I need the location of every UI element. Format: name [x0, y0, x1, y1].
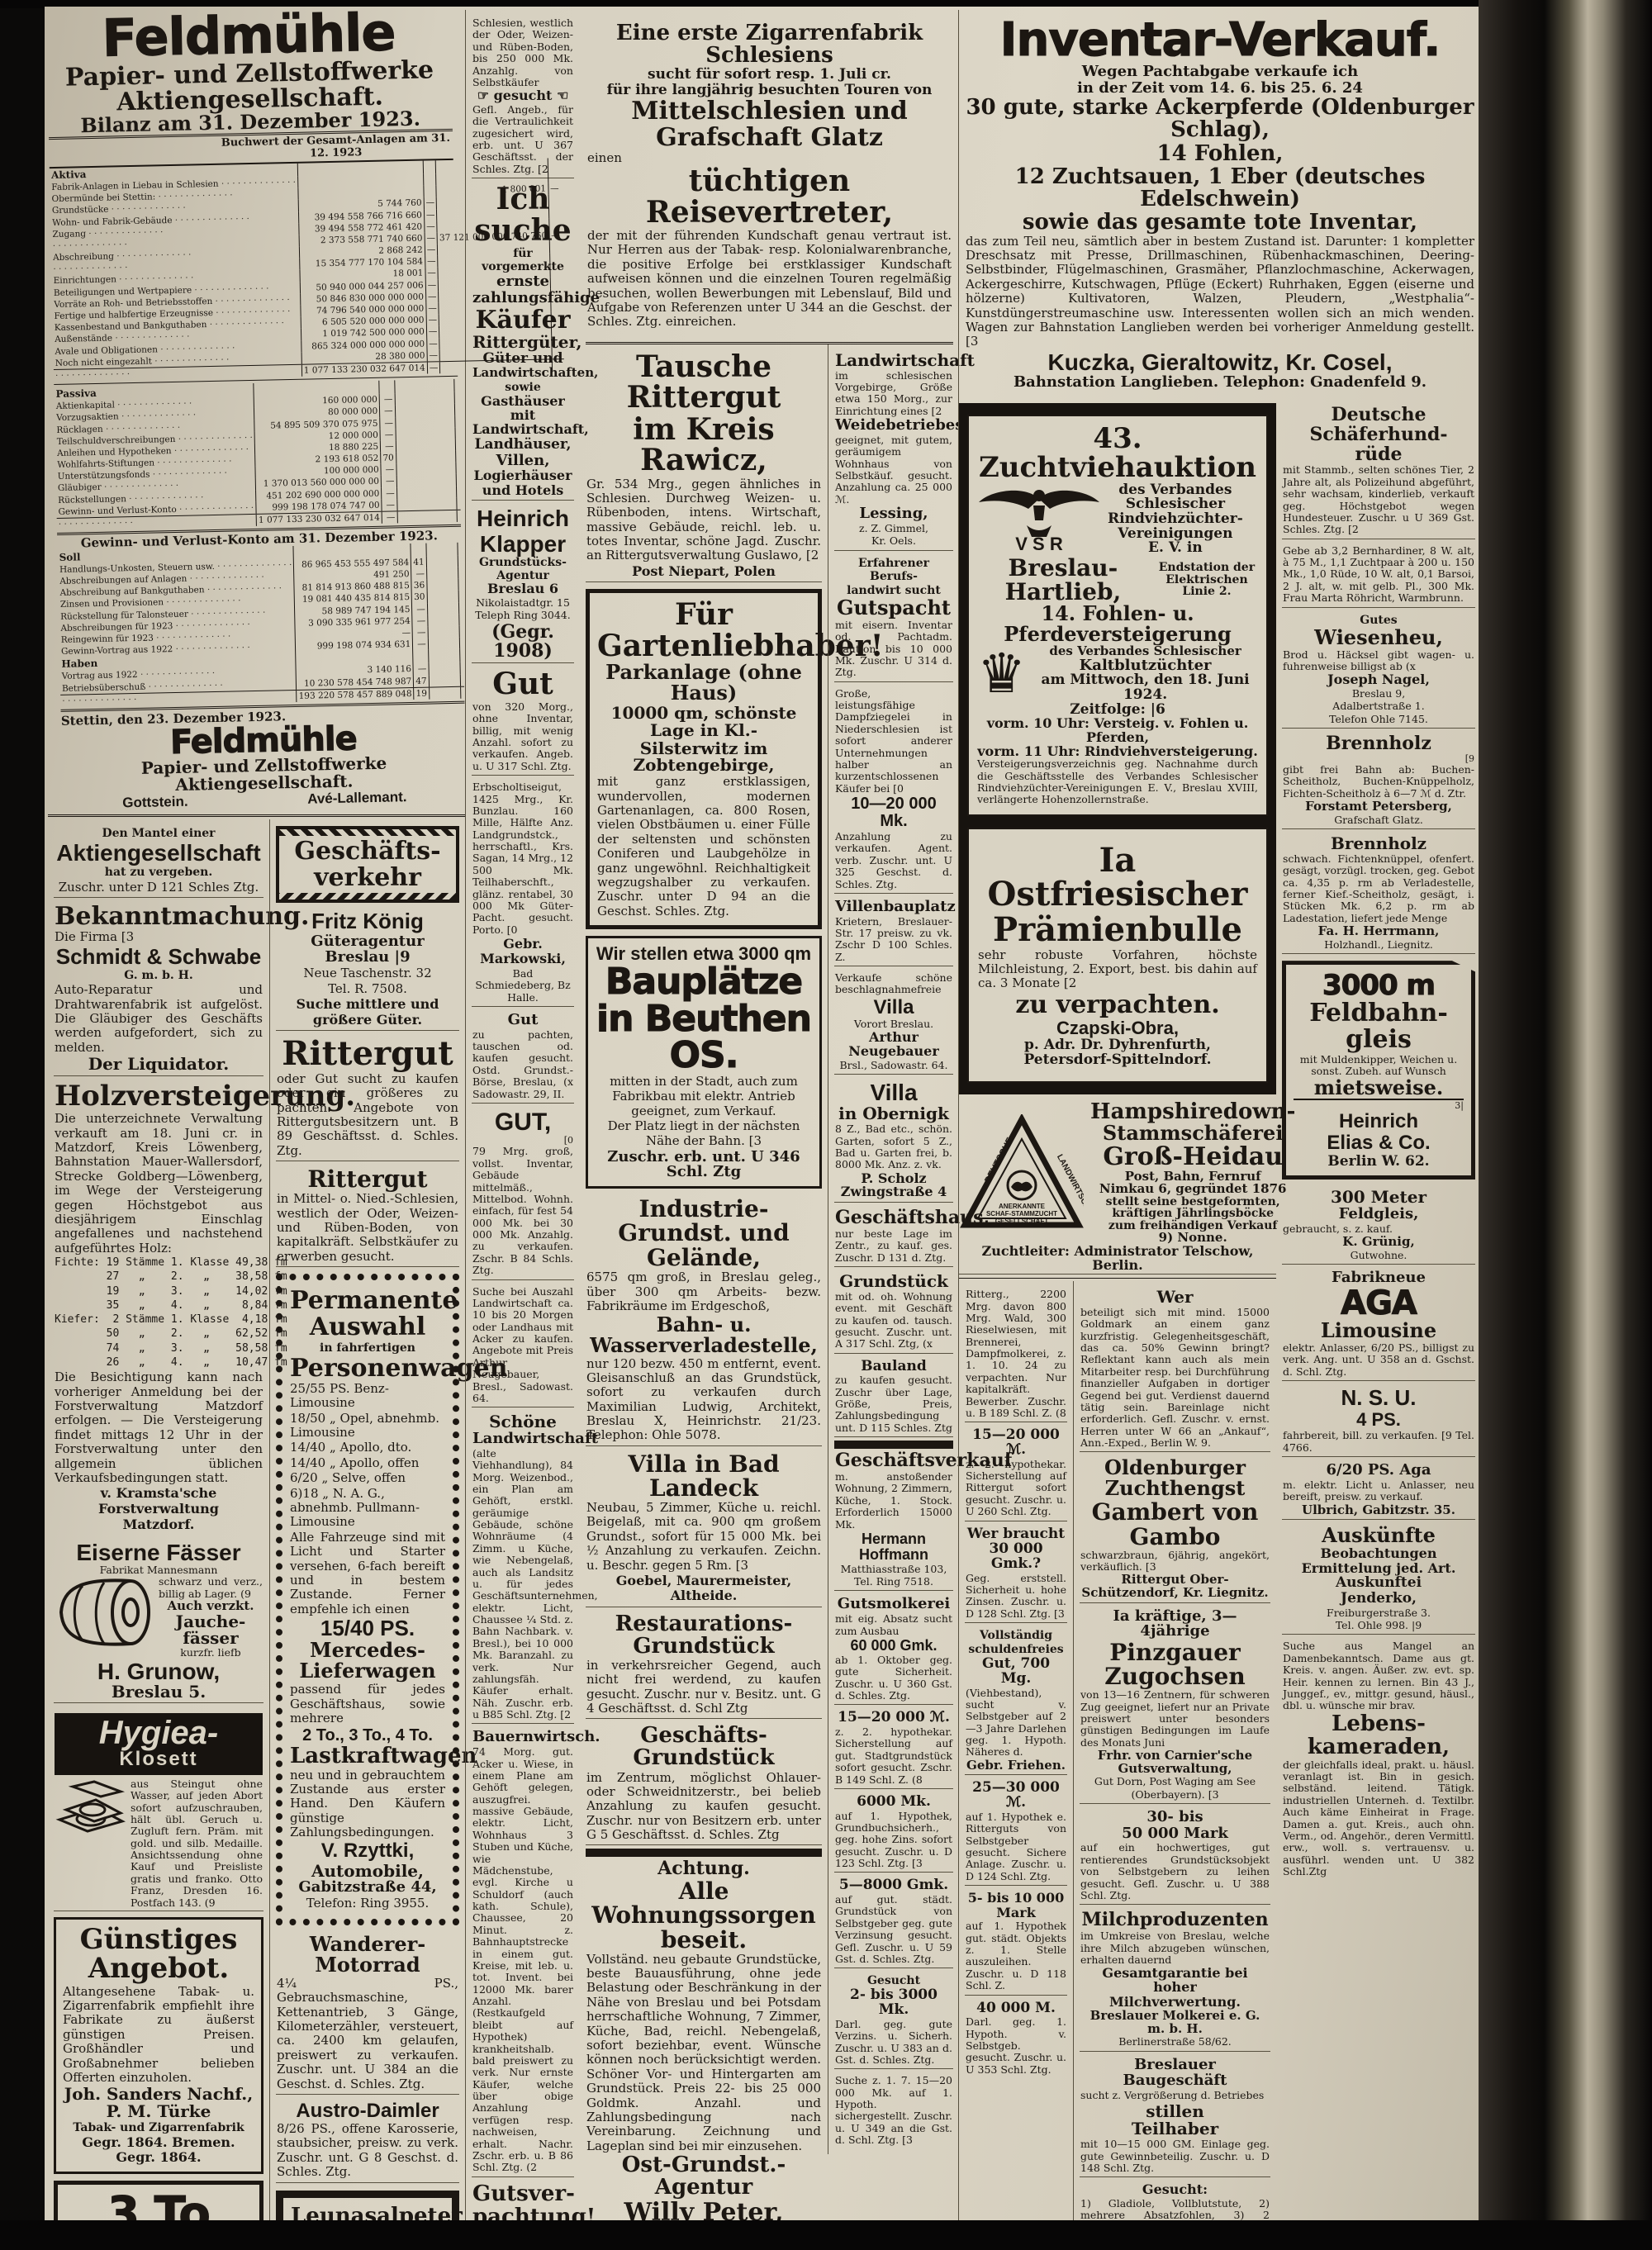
ad-headline: Schmidt & Schwabe — [55, 946, 263, 968]
balance-row-value: 47 — [414, 675, 430, 687]
ad-text: Altangesehene Tabak- u. Zigarrenfabrik e… — [63, 1985, 254, 2086]
ad-text: passend für jedes Geschäftshaus, sowie m… — [290, 1683, 445, 1725]
ad-text: schwach. Fichtenknüppel, ofenfert. gesäg… — [1283, 853, 1474, 924]
classified-ad: Erfahrener Berufs-landwirt suchtGutspach… — [834, 554, 953, 682]
classified-ad: 6000 Mk.auf 1. Hypothek, Grundbuchsicher… — [834, 1792, 953, 1873]
ad-text: Darl. geg. gute Verzins. u. Sicherh. Zus… — [835, 2019, 952, 2067]
classified-ad: Restaurations-Grundstückin verkehrsreich… — [586, 1611, 822, 1720]
ad-headline: Bauernwirtsch. — [472, 1730, 573, 1745]
ad-headline: kameraden, — [1283, 1736, 1474, 1759]
classified-ad: Oldenburger ZuchthengstGambert von Gambo… — [1080, 1455, 1270, 1602]
classified-ad: Suche aus Mangel an Damenbekanntsch. Dam… — [1282, 1638, 1475, 1880]
ad-text: 6)18 „ N. A. G., abnehmb. Pullmann-Limou… — [290, 1487, 445, 1530]
balance-row-value: — — [548, 183, 560, 194]
classified-ad: Günstiges Angebot.Altangesehene Tabak- u… — [54, 1917, 263, 2174]
classified-ad: Rittergutoder Gut sucht zu kaufen oder e… — [276, 1034, 459, 1161]
ad-text: auf 1. Hypothek e. Ritterguts von Selbst… — [966, 1811, 1066, 1882]
ad-headline: 2 To., 3 To., 4 To. — [290, 1727, 445, 1744]
ad-text: 18/50 „ Opel, abnehmb. Limousine — [290, 1412, 445, 1441]
classified-ad: BreslauerBaugeschäftsucht z. Vergrößerun… — [1080, 2055, 1270, 2178]
ad-headline: Landhäuser, — [472, 438, 573, 453]
ad-headline: Teilhaber — [1080, 2120, 1270, 2138]
ad-headline: Willy Peter, — [586, 2200, 821, 2220]
ad-headline: Alle Wohnungssorgen beseit. — [586, 1879, 821, 1951]
ad-headline: 12 Zuchtsauen, 1 Eber (deutsches Edelsch… — [966, 166, 1474, 211]
balance-row-value — [455, 415, 459, 427]
ad-headline: sowie das gesamte tote Inventar, — [966, 211, 1474, 234]
balance-row-value: — — [380, 406, 396, 418]
ad-text: Geg. erststell. Sicherheit u. hohe Zinse… — [966, 1573, 1066, 1621]
ad-text: Alle Fahrzeuge sind mit Licht und Starte… — [290, 1531, 445, 1616]
ad-headline: Wer — [1080, 1289, 1270, 1306]
zuchtviehauktion-ad: 43. Zuchtviehauktion — [967, 415, 1268, 816]
ad-text: Goebel, Maurermeister, Altheide. — [586, 1574, 821, 1604]
ad-text: Gegr. 1864. Bremen. Gegr. 1864. — [63, 2135, 254, 2166]
ad-headline: Ia kräftige, 3—4jährige — [1080, 1609, 1270, 1640]
ad-headline: Agentur — [472, 570, 573, 582]
balance-row-value — [427, 579, 459, 591]
ad-headline: Gasthäuser mit — [472, 395, 573, 422]
ad-text: Post Niepart, Polen — [586, 564, 821, 579]
ad-text: fahrbereit, bill. zu verkaufen. [9 Tel. … — [1283, 1430, 1474, 1454]
balance-row-value — [549, 265, 562, 277]
balance-row-value — [552, 358, 564, 371]
classified-ad: 3 To DixiLastkraftwagen 35 PS in maschin… — [54, 2181, 263, 2220]
ad-text: Fabrikat Mannesmann — [55, 1564, 263, 1576]
ad-headline: Gut — [472, 669, 573, 700]
ad-headline: Tausche Rittergut — [586, 352, 821, 414]
dark-band: 43. Zuchtviehauktion — [959, 403, 1276, 1094]
ad-headline: Personenwagen — [290, 1355, 445, 1381]
classified-ad: Gutsver-pachtung!350 Mrg., durchweg Weiz… — [472, 2181, 574, 2220]
ad-headline: Deutsche — [1283, 406, 1474, 425]
ad-headline: Milchverwertung. — [1080, 1996, 1270, 2010]
ad-text: Gebr. Markowski, — [472, 937, 573, 967]
ad-headline: Aktiengesellschaft — [55, 841, 263, 865]
classified-ad: Für Gartenliebhaber!Parkanlage (ohne Hau… — [586, 589, 822, 929]
ad-headline: Klosett — [56, 1749, 261, 1769]
balance-row-value: — — [426, 314, 439, 325]
balance-row-value — [549, 253, 562, 264]
ad-headline: 300 Meter — [1283, 1189, 1474, 1206]
ad-headline: Milchproduzenten — [1080, 1911, 1270, 1930]
classified-ad: 6/20 PS. Agam. elektr. Licht u. Anlasser… — [1282, 1460, 1475, 1520]
ad-headline: Lastkraftwagen — [290, 1745, 445, 1768]
ad-headline: im Kreis Rawicz, — [586, 415, 821, 477]
balance-row-value — [396, 463, 456, 476]
classified-ad: Leunasalpeterschwefelsaures AmmoniakKali… — [276, 2191, 459, 2220]
classified-ad: Milchproduzentenim Umkreise von Breslau,… — [1080, 1908, 1270, 2051]
ad-headline: Hampshiredown- — [1090, 1101, 1295, 1123]
balance-row-value: — — [379, 394, 395, 406]
classified-ad: 15—20 000 ℳ.z. 2. hypothekar. Sicherstel… — [965, 1426, 1067, 1521]
ad-text: vorm. 11 Uhr: Rindviehversteigerung. — [977, 745, 1258, 759]
barrel-icon — [55, 1576, 154, 1649]
ad-text: Auto-Reparatur und Drahtwarenfabrik ist … — [55, 983, 263, 1055]
ad-headline: 15—20 000 ℳ. — [966, 1428, 1066, 1457]
hygiea-banner: Hygiea- Klosett — [55, 1713, 263, 1775]
ad-headline: Bahn- u. Wasserverladestelle, — [586, 1315, 821, 1356]
classified-ad: Geschäftshaus,nur beste Lage im Zentr., … — [834, 1206, 953, 1267]
ad-headline: Für Gartenliebhaber! — [597, 600, 810, 662]
ad-text: 6575 qm groß, in Breslau geleg., über 30… — [586, 1270, 821, 1313]
classified-ad: AuskünfteBeobachtungenErmittelung jed. A… — [1282, 1523, 1475, 1635]
ad-headline: Breslau-Hartlieb, — [977, 556, 1149, 604]
column-7: Werbeteiligt sich mit mind. 15000 Goldma… — [1073, 1281, 1276, 2220]
balance-row-value: — — [413, 663, 429, 676]
hygiea-klosett-ad: Hygiea- Klosett — [54, 1706, 263, 1911]
balance-row-value: 3 090 335 961 977 254 — [295, 615, 412, 629]
book-binding-shadow — [1479, 0, 1652, 2250]
balance-row-value: 70 — [381, 452, 396, 464]
balance-row-value: — — [413, 638, 429, 651]
ad-text: mitten in der Stadt, auch zum Fabrikbau … — [595, 1075, 813, 1118]
ad-text: Vollständig — [966, 1629, 1066, 1642]
balance-row-value: — — [424, 209, 437, 221]
ad-text: 14/40 „ Apollo, offen — [290, 1456, 445, 1470]
classified-ad: Wanderer-Motorrad4¼ PS., Gebrauchsmaschi… — [276, 1932, 459, 2095]
ad-headline: Groß-Heidau — [1090, 1144, 1295, 1170]
ad-text: Gut Dorn, Post Waging am See — [1080, 1776, 1270, 1787]
ad-headline: Forstamt Petersberg, — [1283, 800, 1474, 814]
balance-row-value — [458, 556, 462, 567]
balance-row-value — [550, 277, 563, 288]
ad-headline: 10000 qm, schönste Lage in Kl.- — [597, 705, 810, 739]
ad-headline: Parkanlage (ohne Haus) — [597, 662, 810, 704]
ad-text: mit Muldenkipper, Weichen u. sonst. Zube… — [1294, 1054, 1464, 1078]
ad-headline: Heinrich — [472, 506, 573, 530]
ad-text: mit Stammb., selten schönes Tier, 2 Jahr… — [1283, 464, 1474, 535]
classified-ad: Austro-Daimler8/26 PS., offene Karosseri… — [276, 2098, 459, 2183]
ad-text: 79 Mrg. groß, vollst. Inventar, Gebäude … — [472, 1146, 573, 1276]
ad-headline: Restaurations-Grundstück — [586, 1613, 821, 1658]
ad-text: Elektrischen Linie 2. — [1156, 574, 1258, 598]
balance-row-value — [458, 567, 463, 579]
ad-headline: 4 PS. — [1283, 1410, 1474, 1429]
ad-text: gebraucht, s. z. kauf. — [1283, 1223, 1474, 1235]
ad-text: v. Kramsta'sche Forstverwaltung — [55, 1486, 263, 1517]
ad-text: Gebe ab 3,2 Bernhardiner, 8 W. alt, à 75… — [1283, 545, 1474, 605]
ad-text: 8/26 PS., offene Karosserie, staubsicher… — [277, 2122, 458, 2180]
sheep-society-triangle-logo: DEUTSCHE LANDWIRTSCH. ANERKANNTE SCHAF-S… — [960, 1114, 1084, 1232]
ad-text: Den Mantel einer — [55, 827, 263, 840]
ad-headline: sucht für sofort resp. 1. Juli cr. — [587, 68, 952, 83]
ad-headline: Bahnstation Langlieben. Telephon: Gnaden… — [966, 375, 1474, 391]
ad-headline: 5—8000 Gmk. — [835, 1878, 952, 1893]
ad-text: mit 10—15 000 GM. Einlage geg. gute Gewi… — [1080, 2138, 1270, 2174]
balance-row-value — [428, 626, 460, 638]
balance-row-value: — — [412, 603, 428, 615]
ad-text: Telefon: Ring 3955. — [290, 1896, 445, 1911]
ad-headline: Pinzgauer Zugochsen — [1080, 1640, 1270, 1688]
column-4: Tausche Rittergutim Kreis Rawicz,Gr. 534… — [580, 344, 828, 2220]
ad-headline: Holzversteigerung. — [55, 1082, 263, 1111]
balance-row-value: 1 077 133 230 032 647 014 — [301, 362, 427, 377]
ad-text: z. Z. Gimmel, — [835, 523, 952, 534]
balance-row-value — [548, 171, 560, 183]
ad-headline: Ulbrich, Gabitzstr. 35. — [1283, 1504, 1474, 1517]
ad-headline: Villa in Bad Landeck — [586, 1452, 821, 1500]
classified-ad: 300 MeterFeldgleis,gebraucht, s. z. kauf… — [1282, 1186, 1475, 1265]
ad-headline: 15/40 PS. — [290, 1617, 445, 1640]
ad-headline: 30- bis — [1080, 1810, 1270, 1825]
ad-headline: Achtung. — [586, 1859, 821, 1878]
ad-text: kräftigen Jährlingsböcke — [1090, 1208, 1295, 1220]
ad-text: sucht z. Vergrößerung d. Betriebes — [1080, 2090, 1270, 2101]
ad-text: auf 1. Hypothek, Grundbuchsicherh., geg.… — [835, 1811, 952, 1870]
ad-text: nur beste Lage im Zentr., zu kauf. ges. … — [835, 1228, 952, 1264]
feldmuehle-balance-ad: Feldmühle Papier- und Zellstoffwerke Akt… — [45, 7, 473, 814]
ad-headline: Schöne — [472, 1413, 573, 1431]
classified-ad: Gesucht2- bis 3000 Mk.Darl. geg. gute Ve… — [834, 1972, 953, 2069]
balance-row-value: — — [380, 440, 396, 453]
balance-row-value — [427, 602, 459, 615]
ad-headline: Geschäfts- — [286, 838, 449, 864]
balance-row-value — [456, 474, 460, 486]
balance-row-value — [548, 206, 561, 218]
ad-text: Zuschr. unter D 121 Schles Ztg. — [55, 881, 263, 895]
balance-row-value — [396, 439, 456, 453]
zigarrenfabrik-ad-wrap: Eine erste Zigarrenfabrik Schlesienssuch… — [580, 10, 959, 342]
ad-headline: Rittergut Ober-Schützendorf, Kr. Liegnit… — [1080, 1574, 1270, 1599]
classified-ad: Schlesien, westlich der Oder, Weizen- un… — [472, 15, 574, 178]
ad-headline: 6000 Mk. — [835, 1795, 952, 1810]
ad-headline: Heinrich — [1294, 1111, 1464, 1132]
ad-text: mit ganz erstklassigen, wundervollen, mo… — [597, 775, 810, 919]
balance-row-value — [460, 649, 464, 662]
ad-text: Vollständ. neu gebaute Grundstücke, best… — [586, 1953, 821, 2153]
ad-headline: Villa — [835, 997, 952, 1018]
ad-text: Breslau 9, — [1283, 688, 1474, 700]
ad-text: Teleph Ring 3044. — [472, 610, 573, 621]
ad-headline: Landwirtschaft — [472, 1431, 573, 1447]
ad-text: z. 2. hypothekar. Sicherstellung auf Rit… — [966, 1459, 1066, 1518]
balance-col-header: Buchwert der Gesamt-Anlagen am 31. 12. 1… — [218, 133, 453, 162]
balance-row-value — [396, 451, 456, 464]
ad-headline: Ia Ostfriesischer — [978, 843, 1257, 912]
balance-row-value: — — [427, 349, 440, 362]
balance-row-value — [429, 686, 461, 699]
classified-ad: Geschäfts-Grundstückim Zentrum, möglichs… — [586, 1722, 822, 1845]
ad-headline: 30 gute, starke Ackerpferde (Oldenburger… — [966, 97, 1474, 141]
balance-row-value — [455, 439, 459, 451]
ad-text: G. m. b. H. — [55, 969, 263, 982]
ad-text: gibt frei Bahn ab: Buchen-Scheitholz, Bu… — [1283, 764, 1474, 800]
ad-text: von 13—16 Zentnern, für schweren Zug gee… — [1080, 1689, 1270, 1749]
ad-text: Bad Schmiedeberg, Bz Halle. — [472, 968, 573, 1004]
ad-text: [9 — [1283, 754, 1474, 763]
ad-headline: 60 000 Gmk. — [835, 1638, 952, 1654]
balance-table-passiva: PassivaAktienkapital160 000 000—Vorzugsa… — [54, 379, 461, 530]
svg-text:SCHAF-STAMMZUCHT: SCHAF-STAMMZUCHT — [986, 1210, 1057, 1218]
ad-headline: 5- bis 10 000 — [966, 1892, 1066, 1906]
ad-text: 27 „ 2. „ 38,58 fm — [55, 1270, 263, 1284]
ad-text: 26 „ 4. „ 10,47 fm — [55, 1356, 263, 1369]
ad-text: Die Firma [3 — [55, 930, 263, 944]
ad-headline: zu verpachten. — [978, 992, 1257, 1018]
newspaper-scan: Feldmühle Papier- und Zellstoffwerke Akt… — [0, 0, 1652, 2250]
ad-headline: Automobile, — [290, 1863, 445, 1880]
column-1: Den Mantel einerAktiengesellschafthat zu… — [48, 819, 269, 2220]
ad-text: Matzdorf. — [55, 1517, 263, 1532]
balance-row-value — [457, 510, 461, 522]
ad-text: Neubau, 5 Zimmer, Küche u. reichl. Beige… — [586, 1501, 821, 1573]
balance-row-value — [396, 474, 457, 487]
classified-ad: Ritterg., 2200 Mrg. davon 800 Mrg. Wald,… — [965, 1286, 1067, 1422]
ad-text: Erfahrener Berufs- — [835, 557, 952, 583]
ad-headline: 25—30 000 ℳ. — [966, 1781, 1066, 1810]
ad-headline: V. Rzyttki, — [290, 1840, 445, 1861]
ad-headline: Villenbauplatz — [835, 900, 952, 915]
ad-headline: Stammschäferei — [1090, 1123, 1295, 1144]
ad-headline: in Obernigk — [835, 1105, 952, 1123]
ad-headline: 14 Fohlen, — [966, 143, 1474, 165]
eagle-vsr-logo: V S R — [977, 484, 1101, 555]
ad-text: (Viehbestand), sucht v. Selbstgeber auf … — [966, 1687, 1066, 1759]
ad-text: Große, leistungsfähige Dampfziegelei in … — [835, 688, 952, 795]
ad-headline: 10—20 000 Mk. — [835, 795, 952, 830]
ad-headline: Feldbahn- — [1294, 1000, 1464, 1026]
ad-text: fässer — [159, 1630, 263, 1647]
ad-text: m. anstoßender Wohnung, 2 Zimmern, Küche… — [835, 1471, 952, 1531]
ad-text: vorm. 10 Uhr: Versteig. v. Fohlen u. Pfe… — [977, 717, 1258, 744]
ad-text: Tel. Ohle 998. |9 — [1283, 1620, 1474, 1631]
ad-headline: P. Scholz Zwingstraße 4 — [835, 1172, 952, 1199]
classified-ad: Erbscholtiseigut, 1425 Mrg., Kr. Bunzlau… — [472, 779, 574, 1007]
ad-text: Brsl., Sadowastr. 64. — [835, 1060, 952, 1071]
ad-text: sehr robuste Vorfahren, höchste Milchlei… — [978, 948, 1257, 991]
balance-row-value — [460, 662, 464, 674]
balance-row-value — [454, 404, 458, 415]
ad-headline: Güteragentur — [277, 934, 458, 950]
balance-row-value — [456, 486, 460, 497]
balance-row-value — [455, 427, 459, 439]
ad-text: Holzhandl., Liegnitz. — [1283, 939, 1474, 951]
ad-headline: Brennholz — [1283, 734, 1474, 753]
classified-ad: Grundstückmit od. oh. Wohnung event. mit… — [834, 1270, 953, 1354]
ad-headline: Der Liquidator. — [55, 1056, 263, 1073]
classified-ad: VollständigschuldenfreiesGut, 700 Mg.(Vi… — [965, 1626, 1067, 1775]
ad-text: auf ein hochwertiges, gut rentierendes G… — [1080, 1842, 1270, 1901]
classified-ad: Suche z. 1. 7. 15—20 000 Mk. auf 1. Hypo… — [834, 2072, 953, 2148]
balance-row-value — [459, 638, 463, 649]
ad-headline: Rittergut — [277, 1037, 458, 1071]
classified-ad: 5- bis 10 000Markauf 1. Hypothek gut. st… — [965, 1889, 1067, 1996]
ad-headline: Bauplätze — [595, 964, 813, 1000]
balance-row-value — [550, 300, 563, 311]
ad-text: auf 1. Hypothek gut. städt. Objekts z. 1… — [966, 1920, 1066, 1991]
balance-row-value — [456, 451, 460, 463]
ad-text: 74 „ 3. „ 58,58 fm — [55, 1342, 263, 1355]
ad-text: Anzahlung zu verkaufen. Agent. verb. Zus… — [835, 831, 952, 890]
balance-row-value: — — [425, 256, 438, 268]
praemienbulle-ad-wrap: Ia OstfriesischerPrämienbullesehr robust… — [967, 828, 1268, 1084]
classified-ad: 3000 mFeldbahn-gleismit Muldenkipper, We… — [1282, 961, 1475, 1180]
balance-row-value: — — [425, 291, 439, 302]
ad-headline: Grundstück — [835, 1273, 952, 1290]
balance-row-value — [551, 335, 563, 347]
classified-ad: N. S. U.4 PS.fahrbereit, bill. zu verkau… — [1282, 1384, 1475, 1457]
column-6: Ritterg., 2200 Mrg. davon 800 Mrg. Wald,… — [959, 1281, 1073, 2083]
classified-ad: FabrikneueAGALimousineelektr. Anlasser, … — [1282, 1268, 1475, 1381]
classified-ad: Holzversteigerung.Die unterzeichnete Ver… — [54, 1080, 263, 1536]
ad-headline: Bekanntmachung. — [55, 904, 263, 929]
balance-row-value: 36 — [411, 580, 427, 592]
ad-headline: Fa. H. Herrmann, — [1283, 925, 1474, 938]
reisevertreter-ad: Eine erste Zigarrenfabrik Schlesienssuch… — [586, 15, 953, 337]
classified-ad: Baulandzu kaufen gesucht. Zuschr über La… — [834, 1357, 953, 1438]
classified-ad: Werbeteiligt sich mit mind. 15000 Goldma… — [1080, 1286, 1270, 1452]
balance-row-value — [454, 379, 458, 392]
balance-row-value — [427, 591, 459, 603]
classified-ad: 25—30 000 ℳ.auf 1. Hypothek e. Rittergut… — [965, 1778, 1067, 1886]
ad-headline: Joseph Nagel, — [1283, 673, 1474, 687]
advertiser-city: Breslau 5. — [55, 1683, 263, 1701]
ad-headline: Austro-Daimler — [277, 2100, 458, 2121]
ad-headline: Frhr. von Carnier'sche Gutsverwaltung, — [1080, 1749, 1270, 1775]
ad-text: schuldenfreies — [966, 1643, 1066, 1656]
balance-row-value: 1 077 133 230 032 647 014 — [256, 511, 382, 526]
ad-text: stellt seine bestgeformten, — [1090, 1196, 1295, 1208]
ad-headline: Klapper — [472, 532, 573, 556]
classified-ad: Den Mantel einerAktiengesellschafthat zu… — [54, 824, 263, 898]
ad-text: oder Gut sucht zu kaufen oder ein größer… — [277, 1072, 458, 1158]
ad-headline: Geschäftsverkauf — [835, 1451, 952, 1470]
ad-text: Endstation der — [1156, 562, 1258, 574]
balance-row-value — [396, 428, 456, 441]
ad-text: im Zentrum, möglichst Ohlauer- oder Schw… — [586, 1771, 821, 1843]
ad-headline: Wanderer-Motorrad — [277, 1934, 458, 1976]
ad-text: Die Besichtigung kann nach vorheriger An… — [55, 1370, 263, 1485]
ad-headline: Gut, 700 Mg. — [966, 1657, 1066, 1686]
ad-headline: Eiserne Fässer — [55, 1540, 263, 1564]
ad-headline: Logierhäuser — [472, 469, 573, 483]
ad-headline: 6/20 PS. Aga — [1283, 1463, 1474, 1479]
ad-text: Kr. Oels. — [835, 535, 952, 547]
ad-text: Schlesien, westlich der Oder, Weizen- un… — [472, 17, 573, 88]
ad-text: 74 Morg. gut. Acker u. Wiese, in einem P… — [472, 1746, 573, 2174]
ad-text: mit eisern. Inventar od. Pachtadm. Kauti… — [835, 619, 952, 679]
ad-headline: 30 000 Gmk.? — [966, 1542, 1066, 1571]
balance-row-value — [427, 615, 459, 627]
ad-headline: 2- bis 3000 Mk. — [835, 1988, 952, 2017]
ad-text: Die unterzeichnete Verwaltung verkauft a… — [55, 1112, 263, 1256]
ad-text: Tel. Ring 7518. — [835, 1576, 952, 1588]
balance-row-value — [396, 486, 457, 499]
ad-text: am Mittwoch, den 18. Juni 1924. — [1032, 673, 1258, 702]
svg-text:V S R: V S R — [1015, 534, 1063, 554]
balance-row-value — [458, 591, 463, 602]
balance-row-value: — — [425, 232, 438, 244]
ad-headline: Mittelschlesien und Grafschaft Glatz — [587, 98, 952, 150]
ad-text: Nimkau 6, gegründet 1876 — [1090, 1183, 1295, 1196]
balance-row-value — [413, 650, 429, 664]
balance-row-value: — — [382, 499, 397, 511]
ad-headline: Gutsmolkerei — [835, 1597, 952, 1612]
ad-text: Neue Taschenstr. 32 — [277, 966, 458, 981]
ad-headline: Prämienbulle — [978, 913, 1257, 947]
balance-row-value — [551, 311, 563, 323]
ad-headline: Auswahl — [290, 1314, 445, 1340]
ad-text: Tel. R. 7508. — [277, 982, 458, 997]
balance-row-value — [548, 218, 561, 230]
ad-headline: Gut — [472, 1013, 573, 1028]
ad-headline: Weidebetriebes — [835, 418, 952, 434]
ad-headline: Bauland — [835, 1360, 952, 1374]
ad-text: zu pachten, tauschen od. kaufen gesucht.… — [472, 1029, 573, 1100]
balance-row-value — [396, 498, 457, 511]
ad-headline: Schäferhund- — [1283, 425, 1474, 444]
